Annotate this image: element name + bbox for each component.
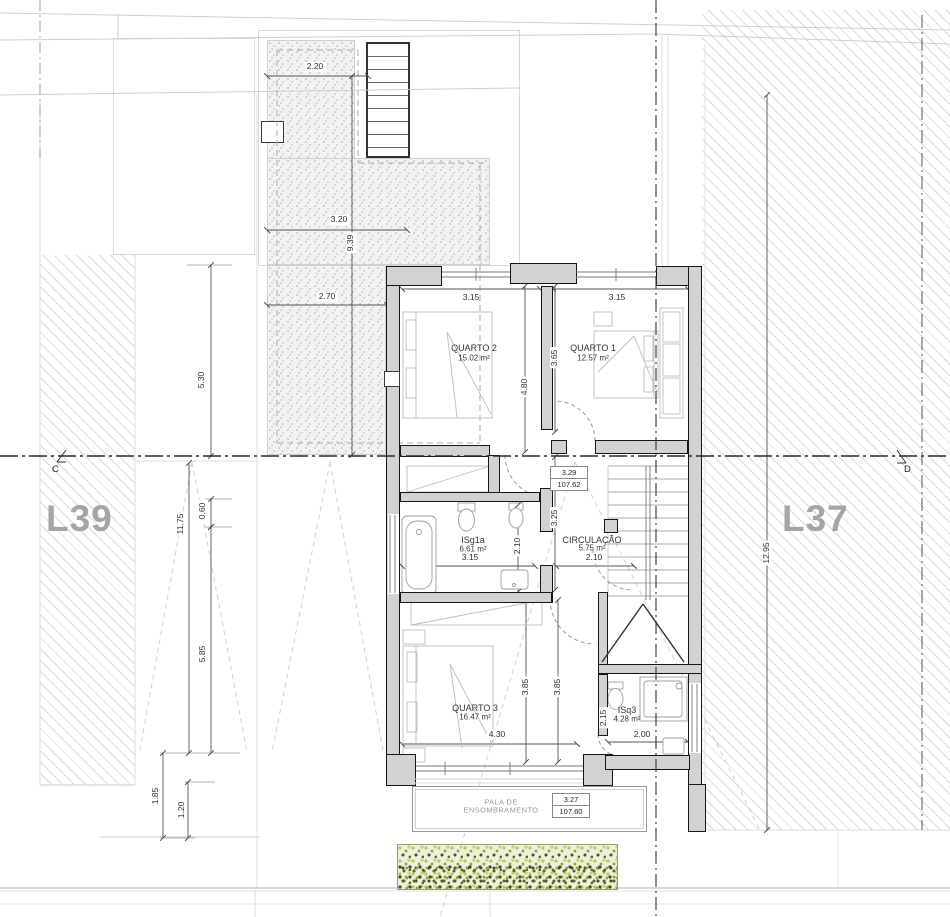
dim-q3-depth2: 3.85 (553, 677, 563, 698)
dim-patio-top: 2.20 (305, 62, 326, 72)
dim-q1-width: 3.15 (609, 293, 626, 303)
lot-label-right: L37 (782, 498, 849, 540)
lot-label-left: L39 (46, 498, 113, 540)
dim-q1-depth: 3.65 (550, 348, 560, 369)
level-upper-value: 3.29 (551, 467, 587, 478)
room-area-quarto1: 12.57 m² (577, 353, 609, 362)
room-label-quarto2: QUARTO 2 (451, 343, 497, 353)
stair-direction-arrow (602, 604, 684, 662)
dim-patio-mid: 3.20 (329, 215, 350, 225)
level-marker-lower: 3.27 107.60 (552, 793, 590, 818)
pala-label-line2: ENSOMBRAMENTO (463, 807, 538, 816)
level-upper-elevation: 107.62 (551, 478, 587, 490)
dim-q3-width: 4.30 (487, 730, 508, 740)
level-marker-upper: 3.29 107.62 (550, 466, 588, 491)
dim-bath-depth: 2.10 (513, 536, 523, 557)
room-area-isg1a: 6.61 m² (459, 544, 486, 553)
dim-left-d: 5.85 (198, 644, 208, 665)
section-marker-c: C (52, 464, 59, 475)
section-marker-d: D (904, 464, 911, 475)
room-area-isq3: 4.28 m² (613, 714, 640, 723)
level-lower-value: 3.27 (553, 794, 589, 805)
floor-plan-drawing: L39 L37 C D 2.20 3.20 9.39 2.70 5.30 11.… (0, 0, 950, 917)
dim-hall-depth: 3.25 (550, 508, 560, 529)
plan-linework-over (0, 0, 950, 917)
dim-circ-width: 2.10 (584, 553, 605, 563)
dim-patio-low: 2.70 (317, 292, 338, 302)
window-glazing (390, 268, 697, 783)
dim-left-f: 1.20 (177, 800, 187, 821)
dim-q3-depth1: 3.85 (521, 677, 531, 698)
dim-isq3-depth: 2.15 (599, 708, 609, 729)
dim-left-a: 5.30 (197, 370, 207, 391)
dim-isq3-width: 2.00 (632, 730, 653, 740)
room-area-circulacao: 5.75 m² (578, 543, 605, 552)
room-area-quarto3: 16.47 m² (459, 712, 491, 721)
room-label-quarto1: QUARTO 1 (570, 343, 616, 353)
dim-q2-depth: 4.80 (520, 377, 530, 398)
dim-lot-right: 12.95 (762, 540, 772, 565)
dim-left-e: 1.85 (151, 786, 161, 807)
dim-left-b: 11.75 (176, 512, 186, 537)
dim-bath-width: 3.15 (460, 553, 481, 563)
level-lower-elevation: 107.60 (553, 805, 589, 817)
dim-left-c: 0.60 (198, 501, 208, 522)
room-area-quarto2: 15.02 m² (458, 353, 490, 362)
dim-patio-len: 9.39 (346, 233, 356, 254)
dim-q2-width: 3.15 (463, 293, 480, 303)
